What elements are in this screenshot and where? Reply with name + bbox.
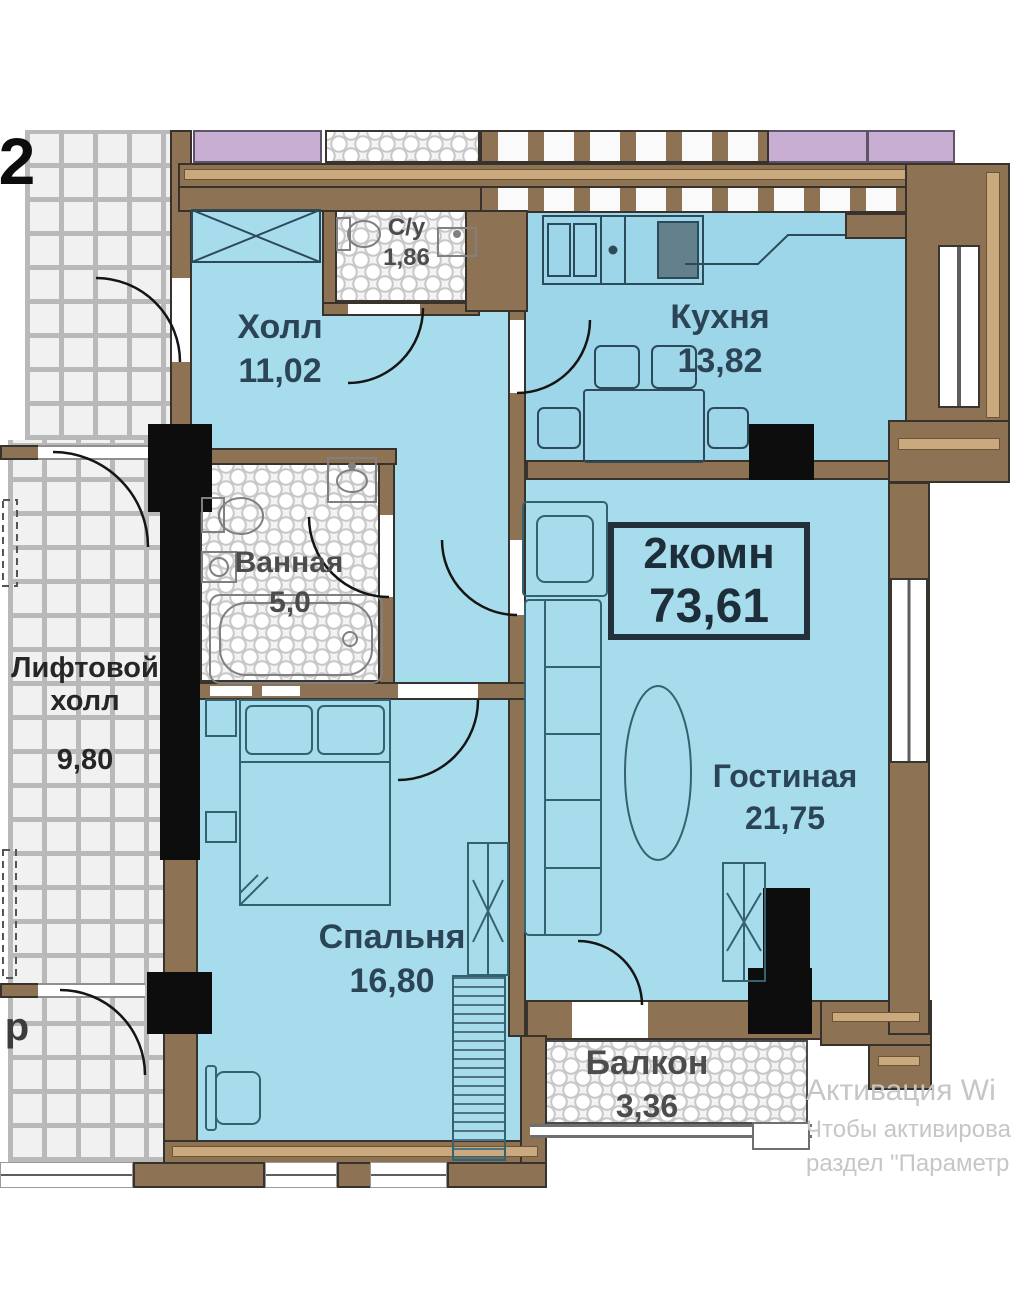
- wall-lift-stub-top: [0, 445, 40, 460]
- opening-corridor-bottom: [38, 983, 145, 998]
- room-label-wc-area: 1,86: [335, 244, 478, 272]
- windows-watermark-line3: раздел "Параметр: [806, 1150, 1009, 1178]
- opening-bedroom-door: [398, 684, 478, 698]
- wall-right-trim: [986, 172, 1000, 418]
- wall-bathroom-top: [200, 448, 397, 465]
- room-label-kitchen-area: 13,82: [640, 342, 800, 381]
- vent-wall-inner: [480, 186, 965, 213]
- opening-entrance: [172, 278, 190, 362]
- window-bottom-c: [370, 1162, 447, 1188]
- opening-living-door: [510, 540, 524, 615]
- window-bottom-b: [265, 1162, 337, 1188]
- room-label-wc-name: С/у: [335, 214, 478, 242]
- shaft-block-lower: [147, 972, 212, 1034]
- room-label-bedroom-name: Спальня: [312, 918, 472, 957]
- neighbor-unit-left: [193, 130, 322, 163]
- vent-wall-top: [480, 130, 769, 163]
- opening-lift-hall: [38, 445, 148, 460]
- neighbor-hex-strip: [325, 130, 480, 163]
- room-label-hall-area: 11,02: [200, 352, 360, 391]
- wall-corner-trim-a: [832, 1012, 920, 1022]
- windows-watermark-line2: Чтобы активирова: [806, 1116, 1011, 1144]
- corridor-tiles-top: [25, 130, 170, 440]
- badge-type: 2комн: [643, 529, 774, 579]
- wardrobe: [452, 975, 506, 1161]
- room-label-living-area: 21,75: [690, 800, 880, 837]
- shaft-block-upper: [148, 424, 212, 512]
- wall-hall-kitchen-living: [508, 310, 526, 1037]
- window-living: [890, 578, 928, 763]
- shaft-living-vent-a: [763, 888, 810, 972]
- window-kitchen: [938, 245, 980, 408]
- room-label-bathroom-name: Ванная: [200, 546, 378, 581]
- apartment-badge: 2комн 73,61: [608, 522, 810, 640]
- room-label-hall-name: Холл: [200, 308, 360, 347]
- neighbor-unit-right: [767, 130, 955, 163]
- opening-bath-vent-b: [262, 686, 300, 696]
- wall-balcony-left: [520, 1035, 547, 1164]
- room-label-kitchen-name: Кухня: [640, 298, 800, 337]
- windows-watermark-line1: Активация Wi: [806, 1074, 996, 1108]
- lift-hall-tiles: [8, 440, 170, 1162]
- balcony-rail-box: [752, 1122, 810, 1150]
- room-label-bedroom-area: 16,80: [312, 962, 472, 1001]
- opening-bathroom-door: [380, 515, 393, 597]
- room-label-lift-hall-area: 9,80: [30, 744, 140, 777]
- wall-bottom-seg-b: [337, 1162, 372, 1188]
- shaft-living-vent-b: [748, 968, 812, 1034]
- window-bottom-a: [0, 1162, 133, 1188]
- wall-top-trim: [184, 169, 1004, 180]
- wall-living-right-step: [888, 420, 1010, 483]
- wall-bottom-seg-c: [447, 1162, 547, 1188]
- wall-top-left-block: [178, 186, 482, 212]
- wall-corner-trim-b: [878, 1056, 920, 1066]
- neighbor-divider: [866, 132, 869, 161]
- floor-plan-canvas: 2 С/у 1,86 Холл 11,02 Кухня 13,82 Ванная…: [0, 0, 1024, 1309]
- opening-balcony-door: [572, 1002, 648, 1038]
- wall-step-trim: [898, 438, 1000, 450]
- opening-bath-vent-a: [210, 686, 252, 696]
- wall-kitchen-niche: [845, 213, 907, 239]
- floor-number: 2: [0, 124, 42, 200]
- opening-kitchen-door: [510, 320, 524, 393]
- wall-bottom-seg-a: [133, 1162, 265, 1188]
- badge-area: 73,61: [649, 579, 769, 634]
- room-label-balcony-name: Балкон: [572, 1044, 722, 1083]
- room-label-balcony-area: 3,36: [572, 1088, 722, 1125]
- wall-lift-stub-bottom: [0, 983, 40, 998]
- room-label-lift-hall-name: Лифтовой холл: [2, 652, 168, 719]
- room-label-living-name: Гостиная: [690, 758, 880, 795]
- shaft-kitchen-vent: [749, 424, 814, 480]
- wall-kitchen-living: [526, 460, 905, 480]
- corridor-partial-text: р: [0, 1004, 34, 1050]
- room-label-bathroom-area: 5,0: [240, 586, 340, 621]
